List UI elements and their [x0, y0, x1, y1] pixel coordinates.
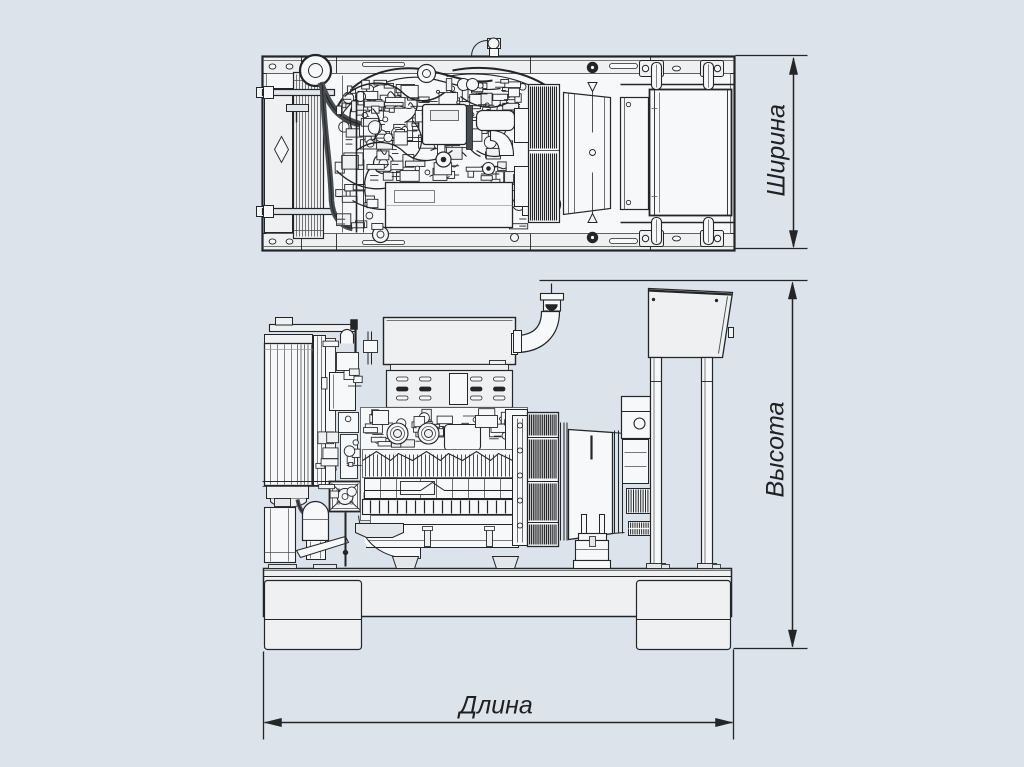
svg-text:Высота: Высота	[762, 401, 790, 497]
svg-text:Ширина: Ширина	[763, 104, 791, 196]
svg-text:Длина: Длина	[457, 692, 533, 720]
